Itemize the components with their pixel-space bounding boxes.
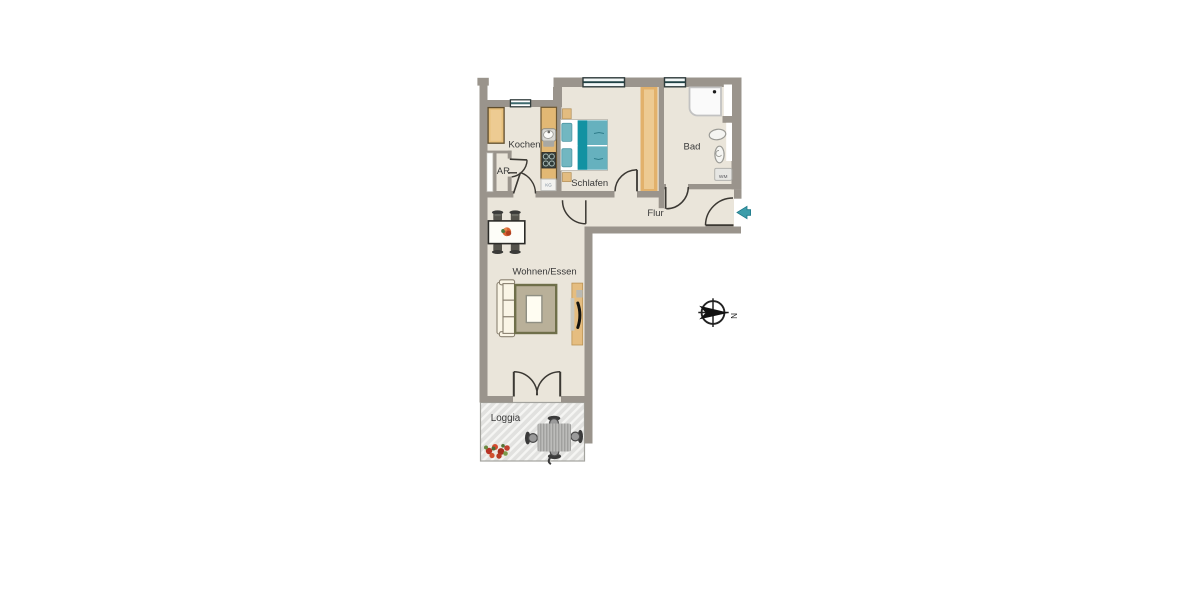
svg-text:AR: AR xyxy=(497,166,510,177)
svg-text:Flur: Flur xyxy=(647,208,663,219)
svg-text:Loggia: Loggia xyxy=(491,413,521,424)
svg-text:Schlafen: Schlafen xyxy=(571,178,608,189)
svg-text:Bad: Bad xyxy=(684,142,701,153)
svg-text:Kochen: Kochen xyxy=(508,140,540,151)
svg-text:N: N xyxy=(729,313,738,319)
svg-text:Wohnen/Essen: Wohnen/Essen xyxy=(512,267,576,278)
svg-text:WM: WM xyxy=(719,174,728,180)
svg-text:KG: KG xyxy=(545,183,552,188)
